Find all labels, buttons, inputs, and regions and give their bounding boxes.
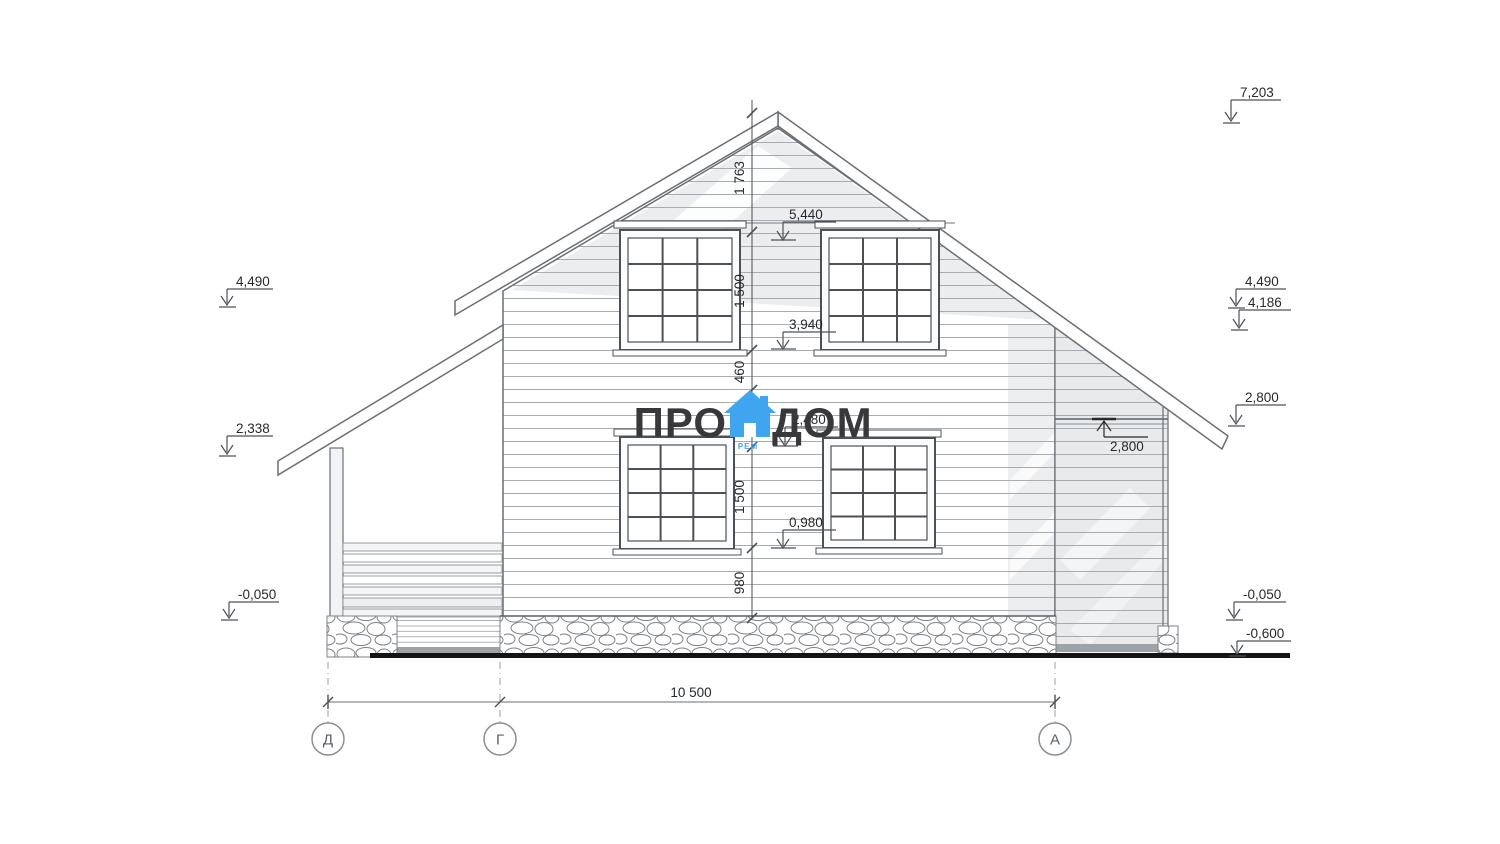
left-level-2338: 2,338 bbox=[236, 421, 270, 436]
right-level-m0600: -0,600 bbox=[1246, 626, 1284, 641]
chain-seg-1500-lower: 1 500 bbox=[732, 480, 747, 514]
wing-stone-footing bbox=[1158, 626, 1178, 653]
left-level-4490: 4,490 bbox=[236, 274, 270, 289]
axis-label-d: Д bbox=[323, 732, 333, 749]
right-wing bbox=[1055, 324, 1178, 653]
right-level-2800: 2,800 bbox=[1245, 390, 1279, 405]
siding-main bbox=[503, 128, 1055, 617]
right-level-7203: 7,203 bbox=[1240, 85, 1274, 100]
window-upper-right bbox=[814, 221, 946, 356]
level-3940-label: 3,940 bbox=[789, 317, 823, 332]
wing-level-2800-label: 2,800 bbox=[1110, 439, 1144, 454]
overall-width-label: 10 500 bbox=[670, 685, 711, 700]
window-lower-left bbox=[613, 429, 741, 555]
porch-post bbox=[330, 448, 343, 618]
left-level-m0050: -0,050 bbox=[238, 587, 276, 602]
right-elevation-markers bbox=[1223, 100, 1291, 656]
right-level-4186: 4,186 bbox=[1248, 295, 1282, 310]
axis-label-a: А bbox=[1050, 732, 1060, 749]
level-0980-label: 0,980 bbox=[789, 515, 823, 530]
level-5440-label: 5,440 bbox=[789, 207, 823, 222]
logo-subtext: РЕМ bbox=[738, 442, 758, 451]
wing-base-shadow bbox=[1056, 644, 1163, 652]
logo-word-pro: ПРО bbox=[634, 399, 727, 446]
chain-seg-1500-upper: 1 500 bbox=[732, 274, 747, 308]
stone-foundation bbox=[500, 616, 1056, 655]
ground-line bbox=[370, 653, 1290, 658]
porch bbox=[327, 448, 503, 657]
chain-seg-460: 460 bbox=[732, 361, 747, 384]
porch-roof-slope bbox=[278, 325, 503, 475]
axis-label-g: Г bbox=[496, 732, 504, 749]
house-elevation-svg: 1 763 1 500 460 1 500 980 5,440 3,940 2,… bbox=[0, 0, 1500, 844]
right-level-m0050: -0,050 bbox=[1243, 587, 1281, 602]
porch-stone-pier bbox=[327, 616, 397, 657]
elevation-drawing-page: 1 763 1 500 460 1 500 980 5,440 3,940 2,… bbox=[0, 0, 1500, 844]
chain-seg-1763: 1 763 bbox=[732, 161, 747, 195]
window-lower-right bbox=[816, 430, 942, 554]
porch-railing bbox=[343, 543, 502, 616]
chain-seg-980: 980 bbox=[732, 572, 747, 595]
window-upper-left bbox=[613, 221, 747, 356]
logo: ПРО ДОМ РЕМ bbox=[634, 390, 873, 451]
house-facade bbox=[503, 128, 1055, 617]
logo-word-dom: ДОМ bbox=[772, 399, 873, 446]
bottom-dimension: 10 500 Д Г А bbox=[312, 662, 1071, 755]
left-elevation-markers bbox=[219, 289, 279, 620]
right-level-4490: 4,490 bbox=[1245, 274, 1279, 289]
